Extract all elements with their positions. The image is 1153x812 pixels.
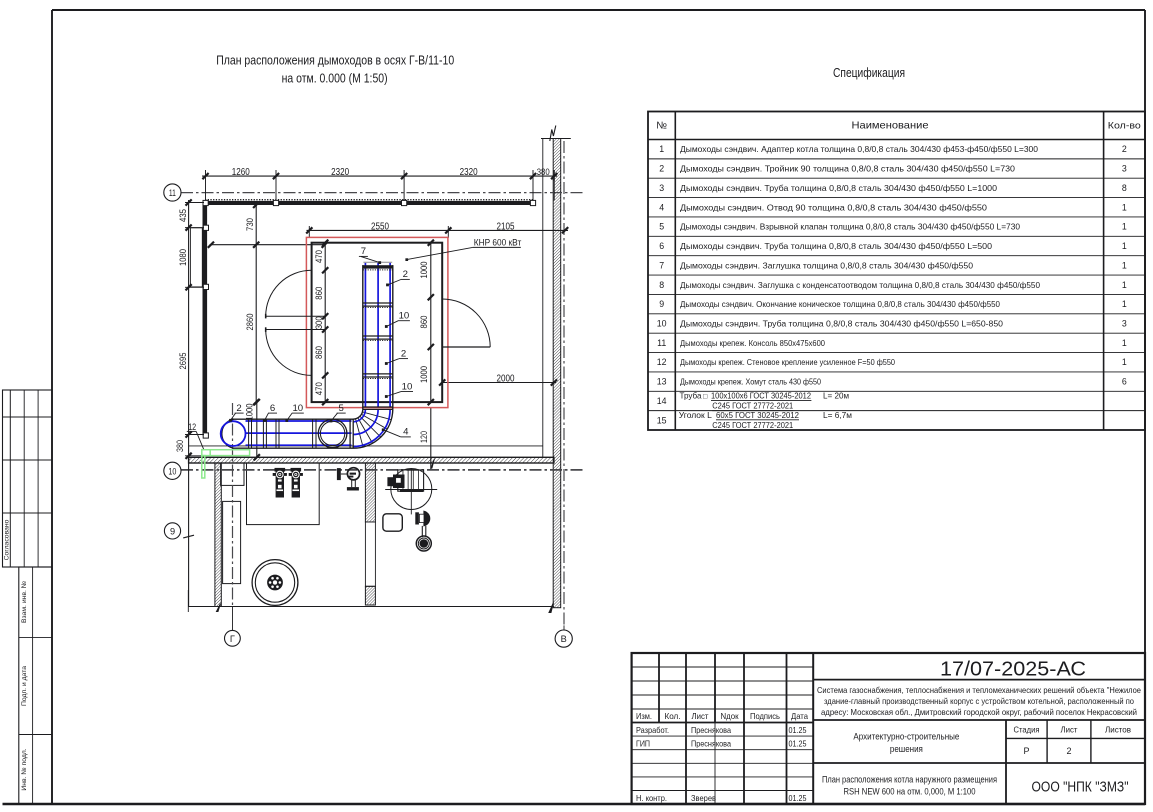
svg-text:2: 2 [1122,144,1127,154]
svg-text:RSH NEW 600 на отм. 0,000, М: RSH NEW 600 на отм. 0,000, М 1:100 [844,786,976,796]
svg-text:14: 14 [657,396,667,406]
svg-text:Кол-во: Кол-во [1108,121,1141,132]
svg-text:380: 380 [175,440,185,452]
svg-text:2550: 2550 [371,222,389,233]
svg-text:11: 11 [657,338,666,348]
svg-text:Лист: Лист [692,712,709,721]
svg-text:Инв. № подл.: Инв. № подл. [21,748,28,790]
svg-text:12: 12 [657,357,667,367]
svg-text:730: 730 [245,218,256,231]
svg-text:Дымоходы сэндвич. Труба толщин: Дымоходы сэндвич. Труба толщина 0,8/0,8 … [680,241,992,251]
svg-text:Р: Р [1023,746,1029,756]
svg-text:2105: 2105 [497,222,515,233]
svg-text:Дымоходы сэндвич. Окончание ко: Дымоходы сэндвич. Окончание коническое т… [680,299,1000,309]
svg-text:Стадия: Стадия [1014,725,1040,735]
svg-text:2320: 2320 [460,167,478,178]
svg-text:10: 10 [402,381,413,392]
svg-text:Преснякова: Преснякова [691,726,731,735]
svg-text:Nдок: Nдок [721,712,739,721]
svg-text:здание-главный производственны: здание-главный производственный корпус с… [824,696,1134,706]
svg-text:Дымоходы крепеж. Стеновое креп: Дымоходы крепеж. Стеновое крепление усил… [680,357,895,367]
svg-text:Зверев: Зверев [691,794,716,803]
svg-text:ООО "НПК "ЗМЗ": ООО "НПК "ЗМЗ" [1032,780,1129,796]
svg-text:Дымоходы сэндвич. Тройник 90 т: Дымоходы сэндвич. Тройник 90 толщина 0,8… [680,164,1015,174]
svg-text:12: 12 [188,422,196,432]
svg-text:1: 1 [1122,299,1127,309]
svg-text:С245 ГОСТ 27772-2021: С245 ГОСТ 27772-2021 [712,420,793,430]
svg-text:2695: 2695 [178,353,189,370]
svg-text:1260: 1260 [232,167,250,178]
svg-text:10: 10 [657,318,667,328]
svg-text:адресу: Московская обл., Дмитр: адресу: Московская обл., Дмитровский гор… [821,707,1137,717]
svg-text:Подп. и дата: Подп. и дата [21,666,28,706]
svg-text:1: 1 [1122,260,1127,270]
svg-text:17/07-2025-АС: 17/07-2025-АС [940,659,1086,681]
svg-text:9: 9 [170,526,175,536]
svg-text:10: 10 [292,403,303,414]
svg-text:435: 435 [178,209,189,222]
svg-text:Дымоходы крепеж. Хомут сталь 4: Дымоходы крепеж. Хомут сталь 430 ф550 [680,377,821,387]
svg-text:860: 860 [419,316,430,329]
svg-text:860: 860 [314,346,325,359]
svg-text:300: 300 [314,316,325,329]
svg-text:1: 1 [1122,338,1127,348]
svg-text:Спецификация: Спецификация [833,65,905,80]
svg-text:10: 10 [399,311,410,322]
svg-text:Преснякова: Преснякова [691,740,731,749]
svg-text:2: 2 [403,269,408,280]
svg-text:Кол.: Кол. [665,712,681,721]
svg-text:7: 7 [659,260,664,270]
svg-text:1: 1 [659,144,664,154]
svg-text:Г: Г [230,634,235,644]
svg-text:3: 3 [1122,164,1127,174]
svg-text:Изм.: Изм. [636,712,652,721]
svg-text:ГИП: ГИП [636,740,650,749]
svg-text:Архитектурно-строительные: Архитектурно-строительные [853,731,959,742]
svg-text:Дымоходы сэндвич. Отвод 90 тол: Дымоходы сэндвич. Отвод 90 толщина 0,8/0… [680,202,987,212]
svg-text:6: 6 [270,403,275,414]
svg-text:L= 6,7м: L= 6,7м [823,410,852,420]
svg-text:Листов: Листов [1105,725,1132,735]
svg-text:15: 15 [657,415,667,425]
svg-text:60х5 ГОСТ 30245-2012: 60х5 ГОСТ 30245-2012 [716,410,799,420]
svg-text:2: 2 [659,164,664,174]
svg-text:470: 470 [314,382,325,395]
svg-text:2: 2 [401,348,406,359]
svg-text:на отм. 0.000 (М 1:50): на отм. 0.000 (М 1:50) [282,71,388,86]
svg-text:Система газоснабжения, теплосн: Система газоснабжения, теплоснабжения и … [817,685,1141,695]
svg-text:5: 5 [339,403,344,414]
svg-text:8: 8 [1122,183,1127,193]
svg-text:1: 1 [1122,280,1127,290]
svg-text:№: № [656,121,667,132]
svg-text:5: 5 [659,222,664,232]
svg-text:6: 6 [659,241,664,251]
svg-text:1: 1 [1122,222,1127,232]
svg-text:3: 3 [1122,318,1127,328]
svg-text:1080: 1080 [178,249,189,266]
svg-text:13: 13 [657,377,667,387]
svg-text:Уголок L: Уголок L [679,410,712,420]
svg-text:3: 3 [659,183,664,193]
svg-text:860: 860 [314,287,325,300]
svg-text:Дымоходы сэндвич. Заглушка тол: Дымоходы сэндвич. Заглушка толщина 0,8/0… [680,260,973,270]
svg-text:Труба: Труба [680,390,702,400]
svg-text:8: 8 [659,280,664,290]
svg-text:1000: 1000 [245,404,256,421]
svg-text:1: 1 [1122,241,1127,251]
svg-text:Наименование: Наименование [852,121,929,132]
svg-text:Согласовано: Согласовано [4,519,11,560]
svg-text:2320: 2320 [331,167,349,178]
svg-text:В: В [561,634,567,644]
svg-text:1000: 1000 [419,366,430,383]
svg-text:120: 120 [419,431,429,443]
svg-text:Разработ.: Разработ. [636,726,669,735]
svg-text:11: 11 [169,188,176,199]
svg-text:Лист: Лист [1061,725,1078,735]
svg-text:01.25: 01.25 [789,794,807,803]
svg-text:Дата: Дата [791,712,808,721]
svg-text:Взам. инв. №: Взам. инв. № [21,581,28,623]
svg-text:6: 6 [1122,377,1127,387]
svg-text:4: 4 [659,202,664,212]
svg-text:Дымоходы крепеж. Консоль 850х4: Дымоходы крепеж. Консоль 850х475х600 [680,338,825,348]
svg-text:2000: 2000 [497,374,515,385]
svg-text:1: 1 [1122,202,1127,212]
svg-text:Н. контр.: Н. контр. [636,794,667,803]
svg-text:План расположения котла наружн: План расположения котла наружного размещ… [822,775,997,785]
svg-text:Дымоходы сэндвич. Взрывной кла: Дымоходы сэндвич. Взрывной клапан толщин… [680,222,1020,232]
svg-text:01.25: 01.25 [789,740,807,749]
svg-text:100х100х6 ГОСТ 30245-2012: 100х100х6 ГОСТ 30245-2012 [711,390,811,400]
svg-text:10: 10 [168,466,176,477]
svg-text:2: 2 [236,403,241,414]
svg-text:01.25: 01.25 [789,726,807,735]
svg-text:Дымоходы сэндвич. Заглушка с к: Дымоходы сэндвич. Заглушка с конденсатоо… [680,280,1040,290]
svg-text:2860: 2860 [245,314,256,331]
svg-text:Дымоходы сэндвич. Адаптер котл: Дымоходы сэндвич. Адаптер котла толщина … [680,144,1038,154]
svg-text:4: 4 [403,427,409,438]
svg-text:L= 20м: L= 20м [823,390,849,400]
svg-text:470: 470 [314,250,325,263]
svg-text:решения: решения [890,743,923,754]
svg-text:Дымоходы сэндвич. Труба толщин: Дымоходы сэндвич. Труба толщина 0,8/0,8 … [680,183,997,193]
svg-text:1000: 1000 [419,262,430,279]
svg-text:Дымоходы сэндвич. Труба толщин: Дымоходы сэндвич. Труба толщина 0,8/0,8 … [680,318,1003,328]
svg-text:1: 1 [1122,357,1127,367]
svg-text:План расположения дымоходов в: План расположения дымоходов в осях Г-В/1… [216,53,454,68]
svg-text:380: 380 [537,166,550,177]
svg-text:9: 9 [659,299,664,309]
svg-text:7: 7 [361,246,366,257]
svg-text:2: 2 [1066,746,1071,756]
svg-text:Подпись: Подпись [750,712,780,721]
svg-text:КНР 600 кВт: КНР 600 кВт [474,237,522,248]
